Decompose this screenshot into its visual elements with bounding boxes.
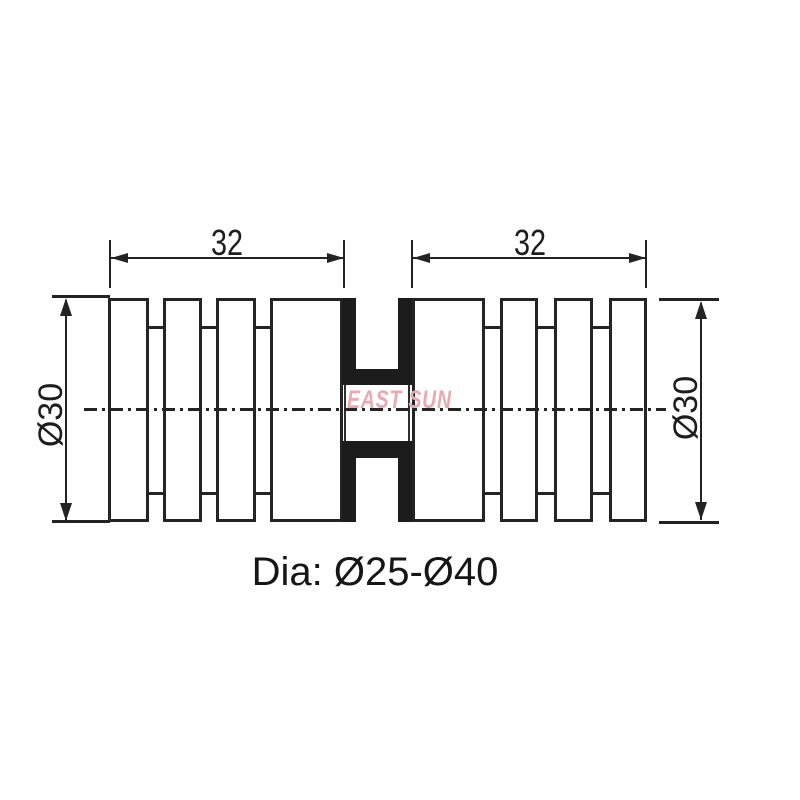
extension-line [343,240,345,288]
extension-tick [659,298,719,301]
arrowhead-right-icon [629,253,646,263]
connector-bar [342,458,356,522]
extension-line [109,240,111,288]
technical-drawing: 32 32 EAST SUN Ø30 Ø30 Dia: Ø25-Ø40 [0,0,800,800]
arrowhead-up-icon [60,298,72,316]
caption-diameter-range: Dia: Ø25-Ø40 [175,550,575,595]
arrowhead-down-icon [60,503,72,521]
connector-crossbar-bottom [342,441,412,458]
dimension-label-left-diameter: Ø30 [31,375,71,455]
arrowhead-left-icon [413,253,430,263]
extension-line [645,240,647,288]
arrowhead-left-icon [111,253,128,263]
connector-bar [398,298,412,369]
arrowhead-up-icon [695,301,707,319]
connector-bar [342,298,356,369]
arrowhead-right-icon [327,253,344,263]
centerline [84,408,666,411]
connector-bar [398,458,412,522]
dimension-label-left-width: 32 [203,222,251,264]
dimension-label-right-width: 32 [506,222,554,264]
connector-crossbar-top [342,369,412,385]
extension-tick [659,521,719,524]
arrowhead-down-icon [695,502,707,520]
dimension-label-right-diameter: Ø30 [666,368,706,448]
extension-line [411,240,413,288]
